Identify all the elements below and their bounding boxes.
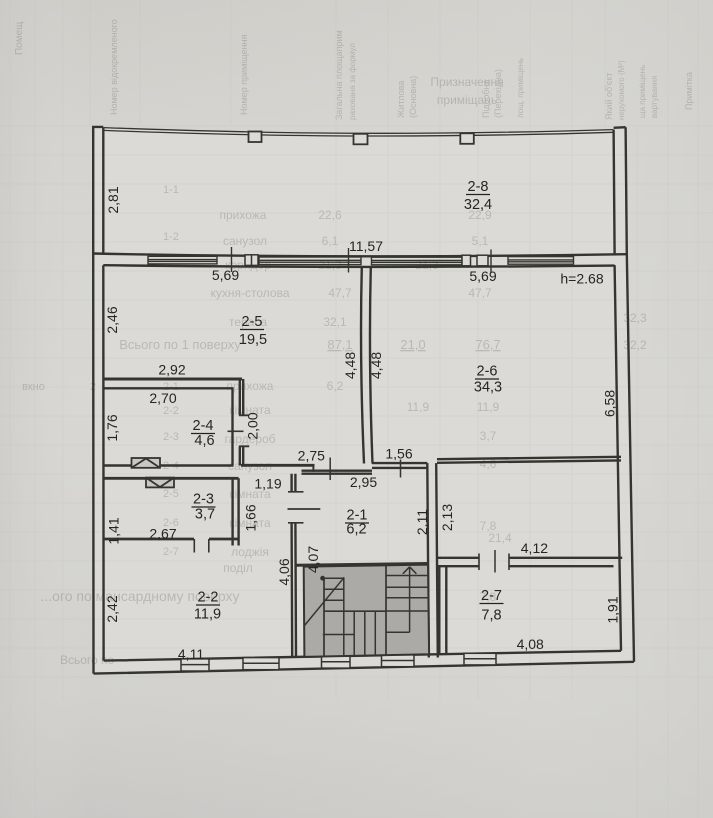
svg-text:2,75: 2,75 [298, 448, 325, 464]
svg-text:1,41: 1,41 [106, 517, 122, 544]
svg-text:2-6: 2-6 [477, 364, 498, 380]
svg-text:Який об'єкт: Який об'єкт [604, 72, 614, 120]
svg-text:вартування: вартування [650, 76, 659, 118]
svg-text:32,2: 32,2 [623, 338, 647, 352]
svg-text:1-1: 1-1 [163, 184, 179, 196]
svg-text:7,8: 7,8 [481, 608, 501, 624]
svg-text:Помещ: Помещ [14, 22, 25, 55]
svg-text:11,9: 11,9 [194, 607, 221, 623]
svg-text:22,6: 22,6 [318, 208, 342, 222]
svg-text:19,5: 19,5 [239, 332, 267, 348]
svg-text:1,66: 1,66 [242, 504, 258, 531]
svg-text:Всього по 1 поверху: Всього по 1 поверху [119, 337, 241, 352]
svg-text:лощ. приміщень: лощ. приміщень [516, 58, 525, 118]
svg-text:4,08: 4,08 [517, 636, 544, 652]
svg-text:2-5: 2-5 [163, 488, 179, 500]
svg-text:ща приміщень: ща приміщень [638, 65, 647, 118]
svg-text:47,7: 47,7 [468, 286, 492, 300]
svg-text:4,11: 4,11 [178, 646, 204, 662]
svg-text:2-2: 2-2 [163, 405, 179, 417]
svg-text:3,7: 3,7 [195, 507, 215, 523]
svg-text:санузол: санузол [223, 234, 267, 248]
svg-text:4,48: 4,48 [368, 352, 384, 379]
svg-text:11,9: 11,9 [407, 400, 430, 414]
svg-text:2,67: 2,67 [149, 526, 176, 542]
svg-text:4,48: 4,48 [342, 352, 358, 379]
svg-text:1,19: 1,19 [254, 476, 281, 492]
svg-text:21,4: 21,4 [488, 531, 512, 545]
svg-text:2-5: 2-5 [242, 314, 263, 330]
svg-text:h=2.68: h=2.68 [560, 271, 603, 287]
svg-text:Примітка: Примітка [684, 72, 694, 110]
svg-text:47,7: 47,7 [328, 286, 352, 300]
svg-text:2-4: 2-4 [193, 418, 214, 434]
svg-text:Призначення: Призначення [430, 75, 503, 89]
svg-text:76,7: 76,7 [475, 337, 500, 352]
svg-text:11,9: 11,9 [477, 400, 500, 414]
svg-text:приміщань: приміщань [437, 93, 497, 107]
svg-text:2,46: 2,46 [104, 306, 120, 333]
svg-text:2-2: 2-2 [198, 590, 219, 606]
svg-text:6,2: 6,2 [327, 379, 344, 393]
svg-text:вкно: вкно [22, 381, 45, 393]
svg-text:2,42: 2,42 [104, 595, 120, 622]
svg-text:6,2: 6,2 [346, 522, 366, 538]
svg-text:87,1: 87,1 [327, 337, 352, 352]
svg-text:2,81: 2,81 [105, 186, 121, 213]
svg-text:нерухомого (М²): нерухомого (М²) [617, 60, 626, 120]
svg-text:2-7: 2-7 [481, 588, 502, 604]
svg-text:2,95: 2,95 [350, 474, 377, 490]
svg-text:кухня-столова: кухня-столова [210, 286, 289, 300]
svg-text:1,91: 1,91 [605, 596, 621, 623]
svg-text:6,58: 6,58 [602, 390, 618, 417]
svg-text:2,70: 2,70 [149, 390, 176, 406]
svg-text:34,3: 34,3 [474, 380, 502, 396]
svg-text:рахована за формул: рахована за формул [348, 43, 357, 120]
svg-text:1,56: 1,56 [385, 446, 412, 462]
svg-text:1,76: 1,76 [104, 414, 120, 441]
svg-text:прихожа: прихожа [220, 208, 267, 222]
svg-text:поділ: поділ [223, 561, 253, 575]
svg-text:32,1: 32,1 [323, 315, 347, 329]
svg-text:2-8: 2-8 [468, 179, 489, 195]
svg-text:2-3: 2-3 [163, 431, 179, 443]
svg-text:2-7: 2-7 [163, 546, 179, 558]
svg-text:11,57: 11,57 [349, 238, 383, 254]
svg-text:4,6: 4,6 [194, 433, 214, 449]
svg-text:Номер приміщення: Номер приміщення [239, 34, 249, 115]
svg-text:5,69: 5,69 [212, 267, 239, 283]
svg-text:6,1: 6,1 [322, 234, 339, 248]
svg-text:4,06: 4,06 [276, 558, 292, 585]
svg-text:4,12: 4,12 [521, 540, 548, 556]
svg-text:3,7: 3,7 [480, 429, 497, 443]
svg-text:5,69: 5,69 [469, 268, 496, 284]
svg-text:32,4: 32,4 [464, 197, 492, 213]
svg-text:2,11: 2,11 [414, 509, 430, 535]
svg-text:5,1: 5,1 [472, 234, 489, 248]
svg-text:2,13: 2,13 [439, 504, 455, 531]
svg-text:2,00: 2,00 [244, 412, 260, 439]
svg-text:21,0: 21,0 [400, 337, 425, 352]
svg-text:2-3: 2-3 [193, 492, 214, 508]
svg-text:4,07: 4,07 [305, 546, 321, 573]
svg-text:Загальна площаприм: Загальна площаприм [334, 30, 344, 120]
svg-text:(Основна): (Основна) [408, 76, 418, 118]
svg-text:1-2: 1-2 [163, 231, 179, 243]
svg-text:2,92: 2,92 [158, 362, 185, 378]
svg-text:Номер відокремленого: Номер відокремленого [109, 19, 119, 115]
svg-text:Житлова: Житлова [396, 81, 406, 118]
svg-text:лоджія: лоджія [231, 545, 269, 559]
